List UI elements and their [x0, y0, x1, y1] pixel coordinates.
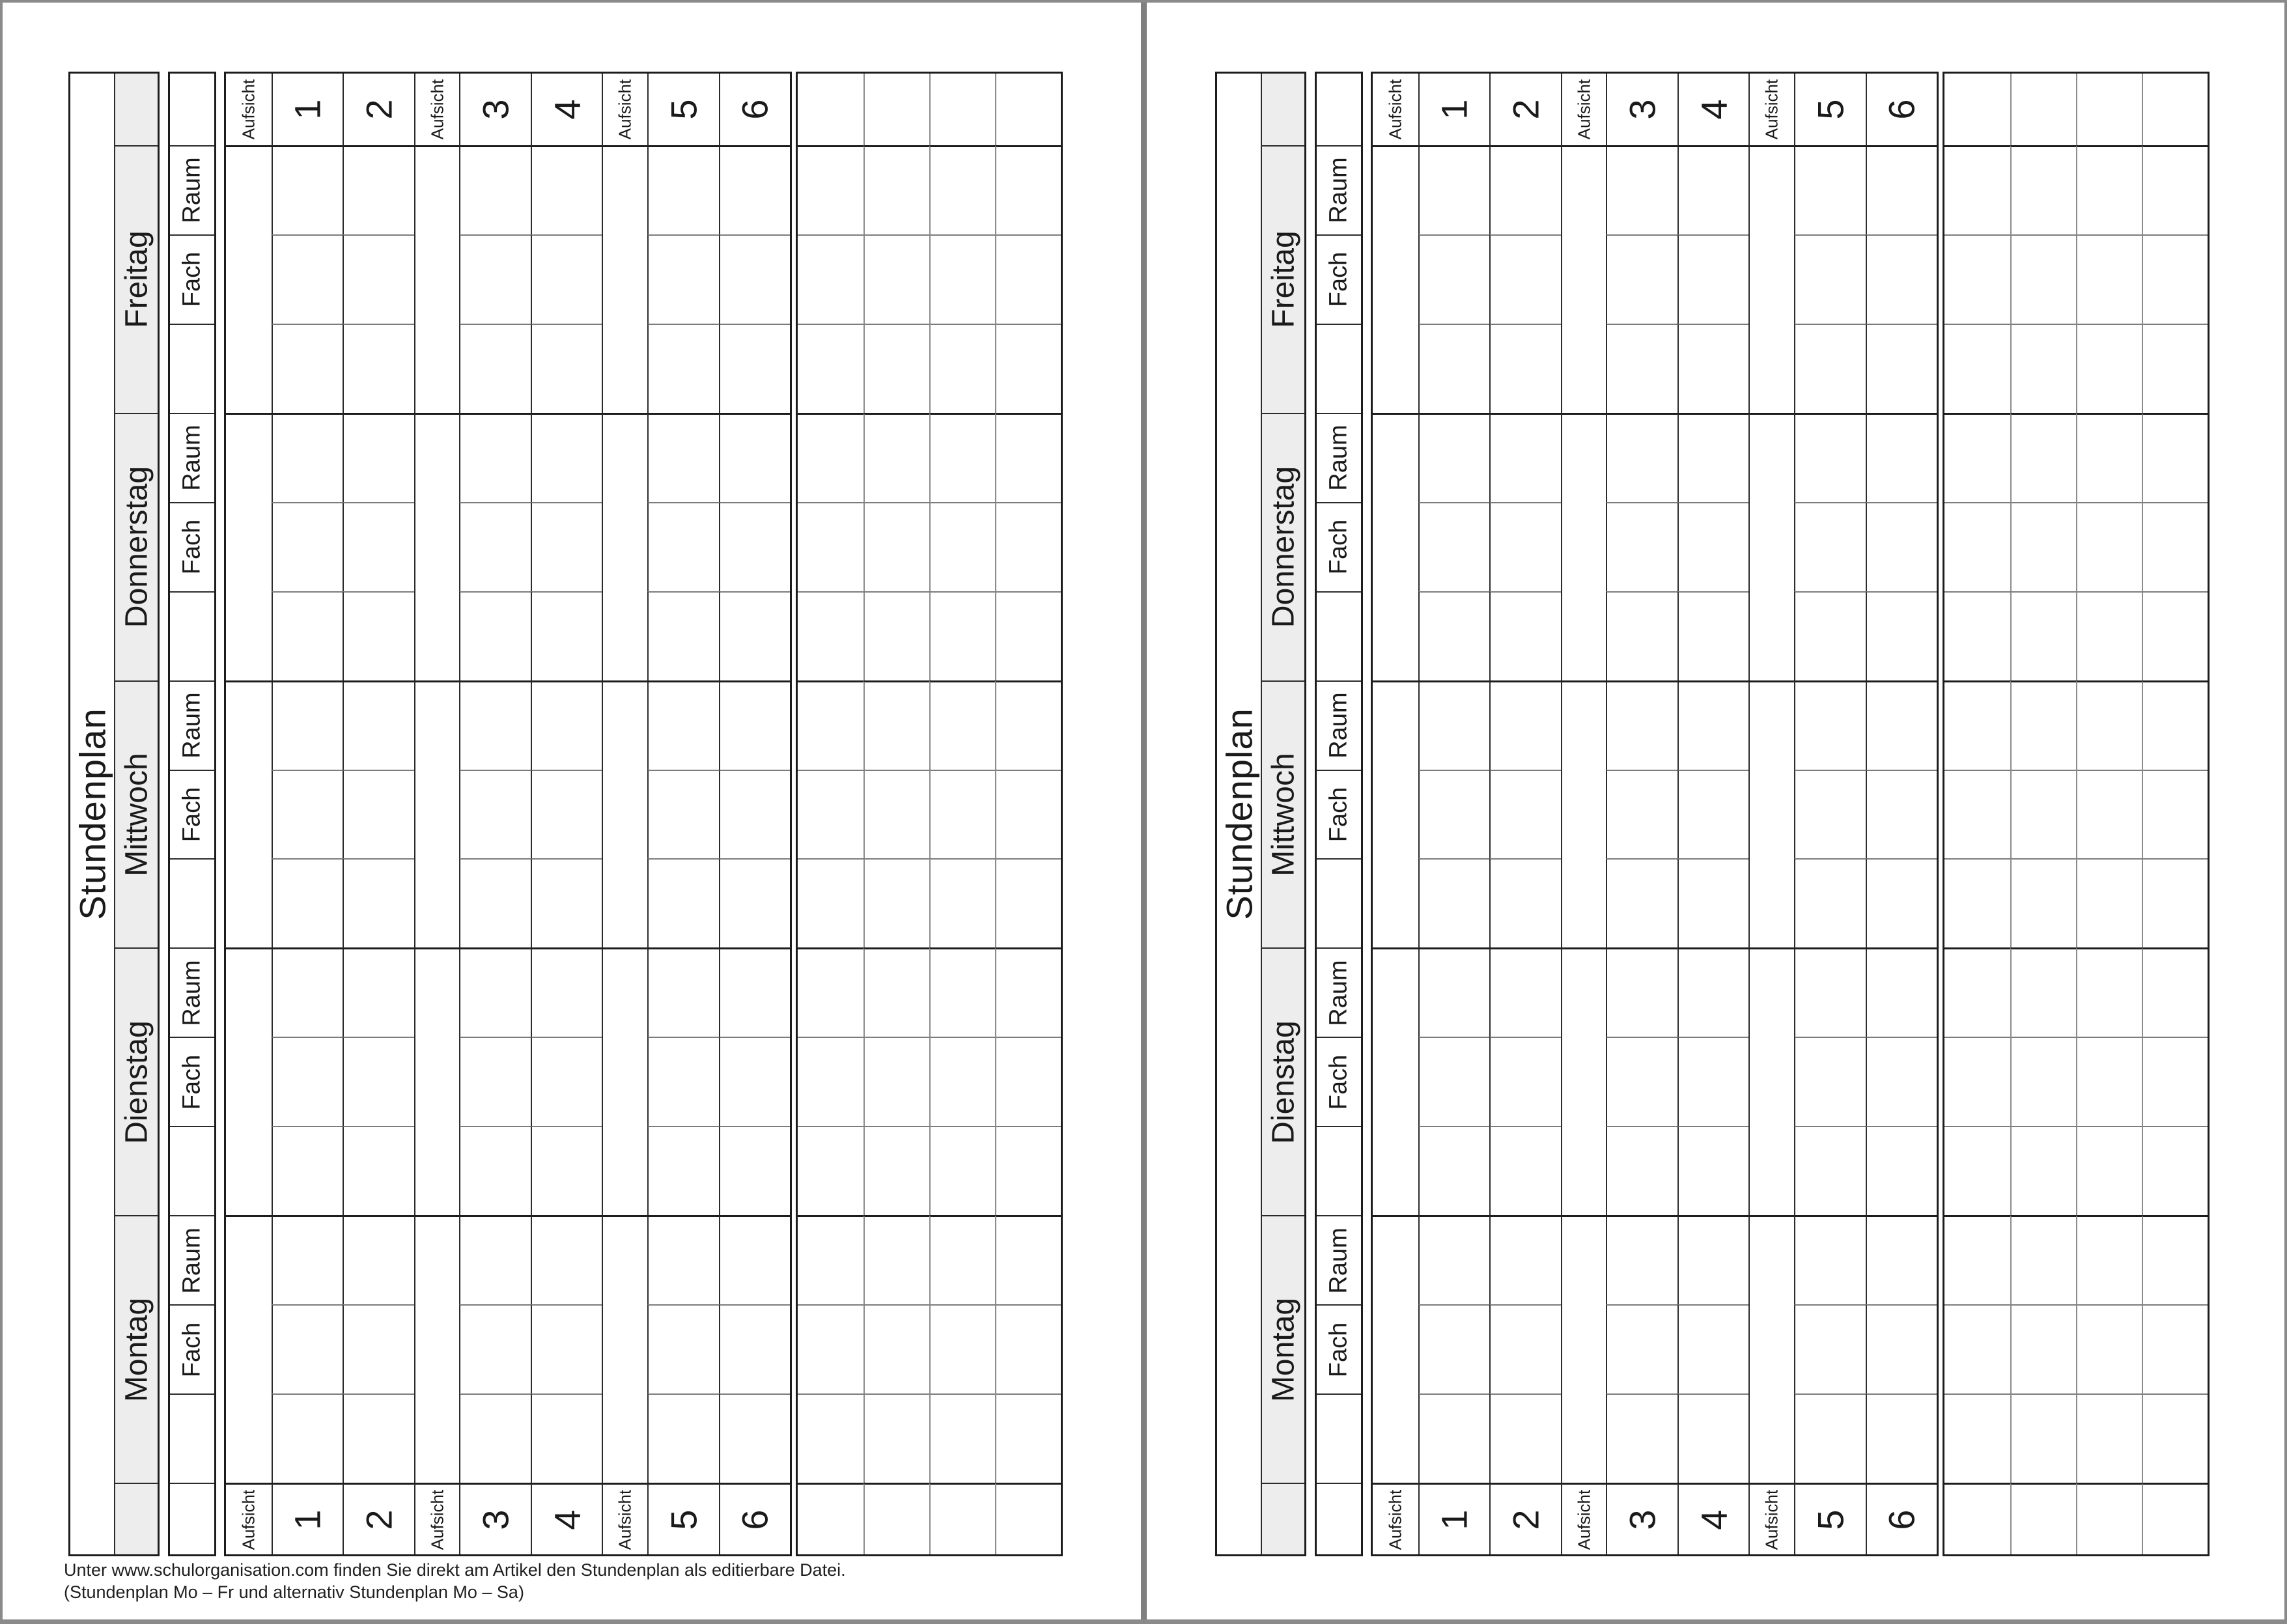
extra-entry-cell: [798, 145, 863, 234]
lesson-entry-cell: [647, 324, 719, 413]
lesson-entry-cell: [719, 947, 790, 1037]
lesson-entry-cell: [647, 591, 719, 680]
extra-entry-cell: [798, 1393, 863, 1483]
extra-entry-cell: [1944, 502, 2010, 591]
lesson-entry-cell: [647, 145, 719, 234]
lesson-entry-cell: [1677, 858, 1749, 947]
day-cell-montag-text: Montag: [119, 1298, 154, 1402]
extra-entry-cell: [2010, 1126, 2076, 1215]
subheader-spacer-top: [170, 74, 214, 145]
lesson-entry-cell: [1866, 502, 1937, 591]
extra-entry-cell: [863, 1393, 929, 1483]
fach-label-cell: Fach: [170, 502, 214, 591]
extra-entry-cell: [863, 1037, 929, 1126]
aufsicht-entry-cell: [602, 680, 647, 948]
extra-entry-cell: [1944, 770, 2010, 859]
period-label-number-text: 3: [1621, 1509, 1664, 1530]
extra-entry-cell: [2076, 145, 2142, 234]
period-label-aufsicht-text: Aufsicht: [238, 1489, 259, 1550]
subheader-column: RaumFachRaumFachRaumFachRaumFachRaumFach: [168, 72, 216, 1556]
extra-entry-cell: [2076, 502, 2142, 591]
period-label-number: 3: [1606, 74, 1677, 145]
lesson-entry-cell: [272, 947, 343, 1037]
aufsicht-entry-cell: [226, 413, 272, 680]
fach-label-cell-text: Fach: [1325, 252, 1353, 307]
lesson-entry-cell: [1418, 1215, 1490, 1304]
raum-label-cell-text: Raum: [178, 1227, 206, 1293]
period-label-number-text: 1: [287, 1509, 329, 1530]
lesson-entry-cell: [1794, 1304, 1866, 1393]
extra-entry-cell: [929, 234, 995, 324]
lesson-entry-cell: [343, 234, 414, 324]
lesson-entry-cell: [272, 1304, 343, 1393]
period-label-aufsicht: Aufsicht: [1561, 1483, 1607, 1554]
aufsicht-entry-cell: [1748, 1215, 1794, 1483]
extra-entry-cell: [2142, 1126, 2208, 1215]
period-label-number-text: 6: [734, 99, 776, 119]
period-label-number-text: 4: [546, 1509, 588, 1530]
fach-label-cell: Fach: [1317, 770, 1361, 859]
period-label-aufsicht: Aufsicht: [602, 1483, 647, 1554]
period-label-number: 3: [1606, 1483, 1677, 1554]
extra-entry-cell: [2010, 591, 2076, 680]
lesson-entry-cell: [1418, 234, 1490, 324]
lesson-entry-cell: [531, 591, 602, 680]
period-label-number-text: 2: [1504, 1509, 1547, 1530]
lesson-entry-cell: [1866, 1037, 1937, 1126]
extra-entry-cell: [1944, 591, 2010, 680]
extra-entry-cell: [2142, 1393, 2208, 1483]
period-label-number-text: 6: [734, 1509, 776, 1530]
lesson-entry-cell: [1418, 324, 1490, 413]
extra-entry-cell: [798, 1483, 863, 1554]
lesson-entry-cell: [1418, 770, 1490, 859]
raum-label-cell: Raum: [170, 145, 214, 234]
day-cell-dienstag-text: Dienstag: [119, 1020, 154, 1143]
period-label-number-text: 1: [1433, 1509, 1476, 1530]
extra-entry-cell: [863, 770, 929, 859]
lesson-entry-cell: [1677, 145, 1749, 234]
scanned-timetable-sheet: StundenplanFreitagDonnerstagMittwochDien…: [0, 0, 2287, 1624]
subheader-blank-cell: [170, 1126, 214, 1215]
lesson-entry-cell: [719, 1304, 790, 1393]
lesson-entry-cell: [1606, 1393, 1677, 1483]
period-label-number: 5: [647, 1483, 719, 1554]
raum-label-cell-text: Raum: [178, 692, 206, 758]
extra-entry-cell: [798, 234, 863, 324]
extra-entry-cell: [863, 1215, 929, 1304]
subheader-blank-cell: [1317, 324, 1361, 413]
lesson-entry-cell: [272, 858, 343, 947]
title-cell: Stundenplan: [70, 74, 114, 1554]
period-label-number: 6: [719, 1483, 790, 1554]
extra-entry-cell: [929, 858, 995, 947]
lesson-entry-cell: [719, 145, 790, 234]
extra-entry-cell: [1944, 1126, 2010, 1215]
extra-entry-cell: [2010, 858, 2076, 947]
period-label-number-text: 1: [287, 99, 329, 119]
extra-entry-cell: [995, 145, 1061, 234]
lesson-entry-cell: [272, 413, 343, 502]
aufsicht-entry-cell: [1373, 680, 1418, 948]
extra-entry-cell: [2010, 1215, 2076, 1304]
fach-label-cell: Fach: [1317, 1304, 1361, 1393]
aufsicht-entry-cell: [602, 947, 647, 1215]
extra-entry-cell: [995, 74, 1061, 145]
extra-entry-cell: [2010, 1304, 2076, 1393]
extra-entry-cell: [798, 413, 863, 502]
lesson-entry-cell: [1866, 324, 1937, 413]
day-cell-mittwoch-text: Mittwoch: [1265, 753, 1301, 876]
lesson-entry-cell: [343, 1037, 414, 1126]
extra-entry-cell: [929, 413, 995, 502]
extra-entry-cell: [929, 680, 995, 770]
aufsicht-entry-cell: [1373, 145, 1418, 413]
lesson-entry-cell: [459, 591, 530, 680]
lesson-entry-cell: [1418, 858, 1490, 947]
day-cell-montag-text: Montag: [1265, 1298, 1301, 1402]
extra-entry-cell: [929, 145, 995, 234]
lesson-entry-cell: [719, 1393, 790, 1483]
lesson-entry-cell: [1418, 947, 1490, 1037]
lesson-entry-cell: [647, 1304, 719, 1393]
lesson-entry-cell: [1866, 770, 1937, 859]
period-label-aufsicht-text: Aufsicht: [1574, 1489, 1594, 1550]
extra-entry-cell: [863, 680, 929, 770]
fach-label-cell-text: Fach: [1325, 787, 1353, 842]
lesson-entry-cell: [531, 1037, 602, 1126]
period-label-number: 5: [1794, 1483, 1866, 1554]
raum-label-cell: Raum: [1317, 680, 1361, 770]
lesson-entry-cell: [1866, 413, 1937, 502]
period-label-number: 4: [531, 74, 602, 145]
period-label-number: 2: [343, 1483, 414, 1554]
period-label-number: 6: [719, 74, 790, 145]
aufsicht-entry-cell: [414, 680, 460, 948]
extra-entry-cell: [2010, 502, 2076, 591]
lesson-entry-cell: [1489, 591, 1560, 680]
aufsicht-entry-cell: [414, 1215, 460, 1483]
extra-entry-cell: [2010, 324, 2076, 413]
extra-entry-cell: [929, 1483, 995, 1554]
extra-entry-cell: [929, 1215, 995, 1304]
lesson-entry-cell: [531, 145, 602, 234]
subheader-spacer-bottom: [170, 1483, 214, 1554]
page-right: StundenplanFreitagDonnerstagMittwochDien…: [1147, 0, 2287, 1624]
extra-entry-cell: [2076, 1304, 2142, 1393]
lesson-entry-cell: [1794, 234, 1866, 324]
lesson-entry-cell: [719, 680, 790, 770]
extra-entry-cell: [2076, 770, 2142, 859]
period-label-number-text: 6: [1881, 1509, 1923, 1530]
aufsicht-entry-cell: [1561, 680, 1607, 948]
subheader-blank-cell: [170, 591, 214, 680]
lesson-entry-cell: [647, 1037, 719, 1126]
lesson-entry-cell: [459, 1304, 530, 1393]
lesson-entry-cell: [1418, 413, 1490, 502]
period-label-aufsicht-text: Aufsicht: [427, 79, 447, 140]
extra-entry-cell: [2010, 1393, 2076, 1483]
extra-entry-cell: [995, 1304, 1061, 1393]
day-spacer-top: [1261, 74, 1304, 145]
lesson-entry-cell: [1794, 591, 1866, 680]
extra-entry-cell: [2010, 680, 2076, 770]
day-cell-freitag-text: Freitag: [119, 231, 154, 328]
lesson-entry-cell: [531, 1126, 602, 1215]
extra-entry-cell: [1944, 413, 2010, 502]
extra-entry-cell: [1944, 858, 2010, 947]
lesson-entry-cell: [343, 324, 414, 413]
extra-entry-cell: [863, 858, 929, 947]
lesson-entry-cell: [1489, 947, 1560, 1037]
extra-entry-cell: [863, 947, 929, 1037]
extra-entry-cell: [2010, 145, 2076, 234]
day-cell-freitag-text: Freitag: [1265, 231, 1301, 328]
lesson-entry-cell: [459, 947, 530, 1037]
day-cell-mittwoch: Mittwoch: [1261, 680, 1304, 948]
extra-entry-cell: [2142, 770, 2208, 859]
extra-entry-cell: [798, 858, 863, 947]
lesson-entry-cell: [459, 324, 530, 413]
period-label-number: 3: [459, 1483, 530, 1554]
lesson-entry-cell: [343, 1393, 414, 1483]
extra-entry-cell: [2142, 234, 2208, 324]
main-grid: Aufsicht12Aufsicht34Aufsicht56Aufsicht12…: [224, 72, 792, 1556]
lesson-entry-cell: [1418, 1126, 1490, 1215]
extra-entry-cell: [798, 1126, 863, 1215]
extra-entry-cell: [995, 858, 1061, 947]
raum-label-cell-text: Raum: [178, 425, 206, 491]
extra-entry-cell: [798, 770, 863, 859]
lesson-entry-cell: [647, 947, 719, 1037]
lesson-entry-cell: [531, 324, 602, 413]
period-label-number-text: 1: [1433, 99, 1476, 119]
extra-grid: [796, 72, 1063, 1556]
fach-label-cell: Fach: [170, 770, 214, 859]
extra-entry-cell: [2076, 413, 2142, 502]
subheader-blank-cell: [1317, 1393, 1361, 1483]
period-label-aufsicht-text: Aufsicht: [1385, 79, 1405, 140]
lesson-entry-cell: [1866, 1126, 1937, 1215]
lesson-entry-cell: [343, 858, 414, 947]
extra-entry-cell: [995, 680, 1061, 770]
lesson-entry-cell: [719, 591, 790, 680]
extra-entry-cell: [995, 324, 1061, 413]
extra-entry-cell: [2076, 591, 2142, 680]
extra-entry-cell: [929, 1037, 995, 1126]
lesson-entry-cell: [1418, 1304, 1490, 1393]
extra-entry-cell: [1944, 1215, 2010, 1304]
lesson-entry-cell: [1489, 234, 1560, 324]
lesson-entry-cell: [647, 1126, 719, 1215]
lesson-entry-cell: [459, 1215, 530, 1304]
subheader-blank-cell: [170, 1393, 214, 1483]
extra-entry-cell: [863, 324, 929, 413]
lesson-entry-cell: [343, 680, 414, 770]
lesson-entry-cell: [1489, 1037, 1560, 1126]
extra-entry-cell: [2010, 1483, 2076, 1554]
extra-entry-cell: [995, 770, 1061, 859]
extra-entry-cell: [2076, 858, 2142, 947]
extra-entry-cell: [2142, 858, 2208, 947]
lesson-entry-cell: [343, 413, 414, 502]
lesson-entry-cell: [343, 145, 414, 234]
extra-entry-cell: [929, 324, 995, 413]
lesson-entry-cell: [1606, 413, 1677, 502]
extra-entry-cell: [2076, 1037, 2142, 1126]
lesson-entry-cell: [272, 1037, 343, 1126]
extra-entry-cell: [2076, 1393, 2142, 1483]
period-label-number-text: 4: [1692, 1509, 1735, 1530]
lesson-entry-cell: [719, 502, 790, 591]
extra-entry-cell: [995, 234, 1061, 324]
lesson-entry-cell: [1489, 413, 1560, 502]
period-label-number-text: 3: [475, 99, 517, 119]
raum-label-cell-text: Raum: [1325, 425, 1353, 491]
subheader-blank-cell: [1317, 858, 1361, 947]
extra-entry-cell: [1944, 1304, 2010, 1393]
raum-label-cell: Raum: [170, 1215, 214, 1304]
title-day-box: StundenplanFreitagDonnerstagMittwochDien…: [1215, 72, 1306, 1556]
lesson-entry-cell: [1489, 324, 1560, 413]
page-left: StundenplanFreitagDonnerstagMittwochDien…: [0, 0, 1141, 1624]
raum-label-cell: Raum: [1317, 413, 1361, 502]
lesson-entry-cell: [1866, 1304, 1937, 1393]
aufsicht-entry-cell: [1748, 413, 1794, 680]
lesson-entry-cell: [1606, 858, 1677, 947]
extra-entry-cell: [2076, 74, 2142, 145]
lesson-entry-cell: [1794, 1215, 1866, 1304]
extra-entry-cell: [863, 1304, 929, 1393]
lesson-entry-cell: [1489, 1304, 1560, 1393]
extra-entry-cell: [995, 1126, 1061, 1215]
lesson-entry-cell: [719, 1037, 790, 1126]
period-label-number: 5: [1794, 74, 1866, 145]
lesson-entry-cell: [1606, 324, 1677, 413]
extra-entry-cell: [798, 1304, 863, 1393]
extra-entry-cell: [929, 1304, 995, 1393]
lesson-entry-cell: [1866, 1393, 1937, 1483]
period-label-aufsicht-text: Aufsicht: [1762, 1489, 1782, 1550]
lesson-entry-cell: [719, 324, 790, 413]
period-label-number-text: 5: [1809, 1509, 1851, 1530]
lesson-entry-cell: [343, 1215, 414, 1304]
main-grid: Aufsicht12Aufsicht34Aufsicht56Aufsicht12…: [1371, 72, 1939, 1556]
aufsicht-entry-cell: [414, 145, 460, 413]
day-cell-donnerstag-text: Donnerstag: [1265, 466, 1301, 628]
extra-entry-cell: [995, 1483, 1061, 1554]
period-label-number-text: 5: [1809, 99, 1851, 119]
lesson-entry-cell: [343, 591, 414, 680]
aufsicht-entry-cell: [226, 947, 272, 1215]
period-label-number: 2: [1489, 1483, 1560, 1554]
period-label-aufsicht-text: Aufsicht: [427, 1489, 447, 1550]
period-label-number: 1: [1418, 74, 1490, 145]
lesson-entry-cell: [272, 234, 343, 324]
lesson-entry-cell: [647, 770, 719, 859]
extra-entry-cell: [929, 1126, 995, 1215]
extra-entry-cell: [995, 502, 1061, 591]
period-label-aufsicht-text: Aufsicht: [1574, 79, 1594, 140]
lesson-entry-cell: [531, 1393, 602, 1483]
lesson-entry-cell: [1866, 145, 1937, 234]
lesson-entry-cell: [1606, 1304, 1677, 1393]
lesson-entry-cell: [1606, 234, 1677, 324]
lesson-entry-cell: [1606, 680, 1677, 770]
period-label-aufsicht: Aufsicht: [414, 1483, 460, 1554]
period-label-number: 1: [1418, 1483, 1490, 1554]
day-cell-freitag: Freitag: [114, 145, 158, 413]
lesson-entry-cell: [459, 145, 530, 234]
aufsicht-entry-cell: [1561, 1215, 1607, 1483]
raum-label-cell: Raum: [170, 947, 214, 1037]
lesson-entry-cell: [1606, 1037, 1677, 1126]
day-cell-dienstag-text: Dienstag: [1265, 1020, 1301, 1143]
extra-entry-cell: [2076, 1215, 2142, 1304]
lesson-entry-cell: [272, 770, 343, 859]
period-label-number-text: 2: [358, 1509, 400, 1530]
period-label-aufsicht-text: Aufsicht: [1385, 1489, 1405, 1550]
lesson-entry-cell: [1794, 1126, 1866, 1215]
lesson-entry-cell: [1489, 680, 1560, 770]
extra-entry-cell: [1944, 324, 2010, 413]
day-cell-montag: Montag: [114, 1215, 158, 1483]
lesson-entry-cell: [1677, 324, 1749, 413]
extra-entry-cell: [1944, 74, 2010, 145]
period-label-number-text: 5: [662, 99, 705, 119]
period-label-aufsicht: Aufsicht: [1373, 1483, 1418, 1554]
subheader-blank-cell: [1317, 1126, 1361, 1215]
aufsicht-entry-cell: [1561, 145, 1607, 413]
day-cell-montag: Montag: [1261, 1215, 1304, 1483]
raum-label-cell-text: Raum: [178, 960, 206, 1026]
extra-entry-cell: [863, 234, 929, 324]
lesson-entry-cell: [1794, 413, 1866, 502]
lesson-entry-cell: [719, 1126, 790, 1215]
raum-label-cell-text: Raum: [178, 158, 206, 223]
aufsicht-entry-cell: [1561, 947, 1607, 1215]
raum-label-cell: Raum: [170, 680, 214, 770]
extra-entry-cell: [863, 1483, 929, 1554]
extra-entry-cell: [2076, 324, 2142, 413]
fach-label-cell-text: Fach: [1325, 520, 1353, 574]
day-cell-mittwoch: Mittwoch: [114, 680, 158, 948]
lesson-entry-cell: [531, 858, 602, 947]
lesson-entry-cell: [647, 1393, 719, 1483]
subheader-spacer-bottom: [1317, 1483, 1361, 1554]
day-cell-dienstag: Dienstag: [1261, 947, 1304, 1215]
period-label-number-text: 5: [662, 1509, 705, 1530]
lesson-entry-cell: [1677, 502, 1749, 591]
day-spacer-top: [114, 74, 158, 145]
lesson-entry-cell: [459, 1393, 530, 1483]
extra-entry-cell: [1944, 680, 2010, 770]
period-label-number: 2: [1489, 74, 1560, 145]
extra-entry-cell: [863, 413, 929, 502]
lesson-entry-cell: [1677, 1215, 1749, 1304]
day-cell-donnerstag: Donnerstag: [114, 413, 158, 680]
raum-label-cell: Raum: [1317, 145, 1361, 234]
extra-entry-cell: [798, 1037, 863, 1126]
period-label-number: 6: [1866, 74, 1937, 145]
period-label-number-text: 4: [546, 99, 588, 119]
lesson-entry-cell: [531, 234, 602, 324]
extra-entry-cell: [995, 1037, 1061, 1126]
extra-entry-cell: [2142, 1304, 2208, 1393]
lesson-entry-cell: [1794, 1037, 1866, 1126]
extra-entry-cell: [2142, 591, 2208, 680]
lesson-entry-cell: [459, 413, 530, 502]
